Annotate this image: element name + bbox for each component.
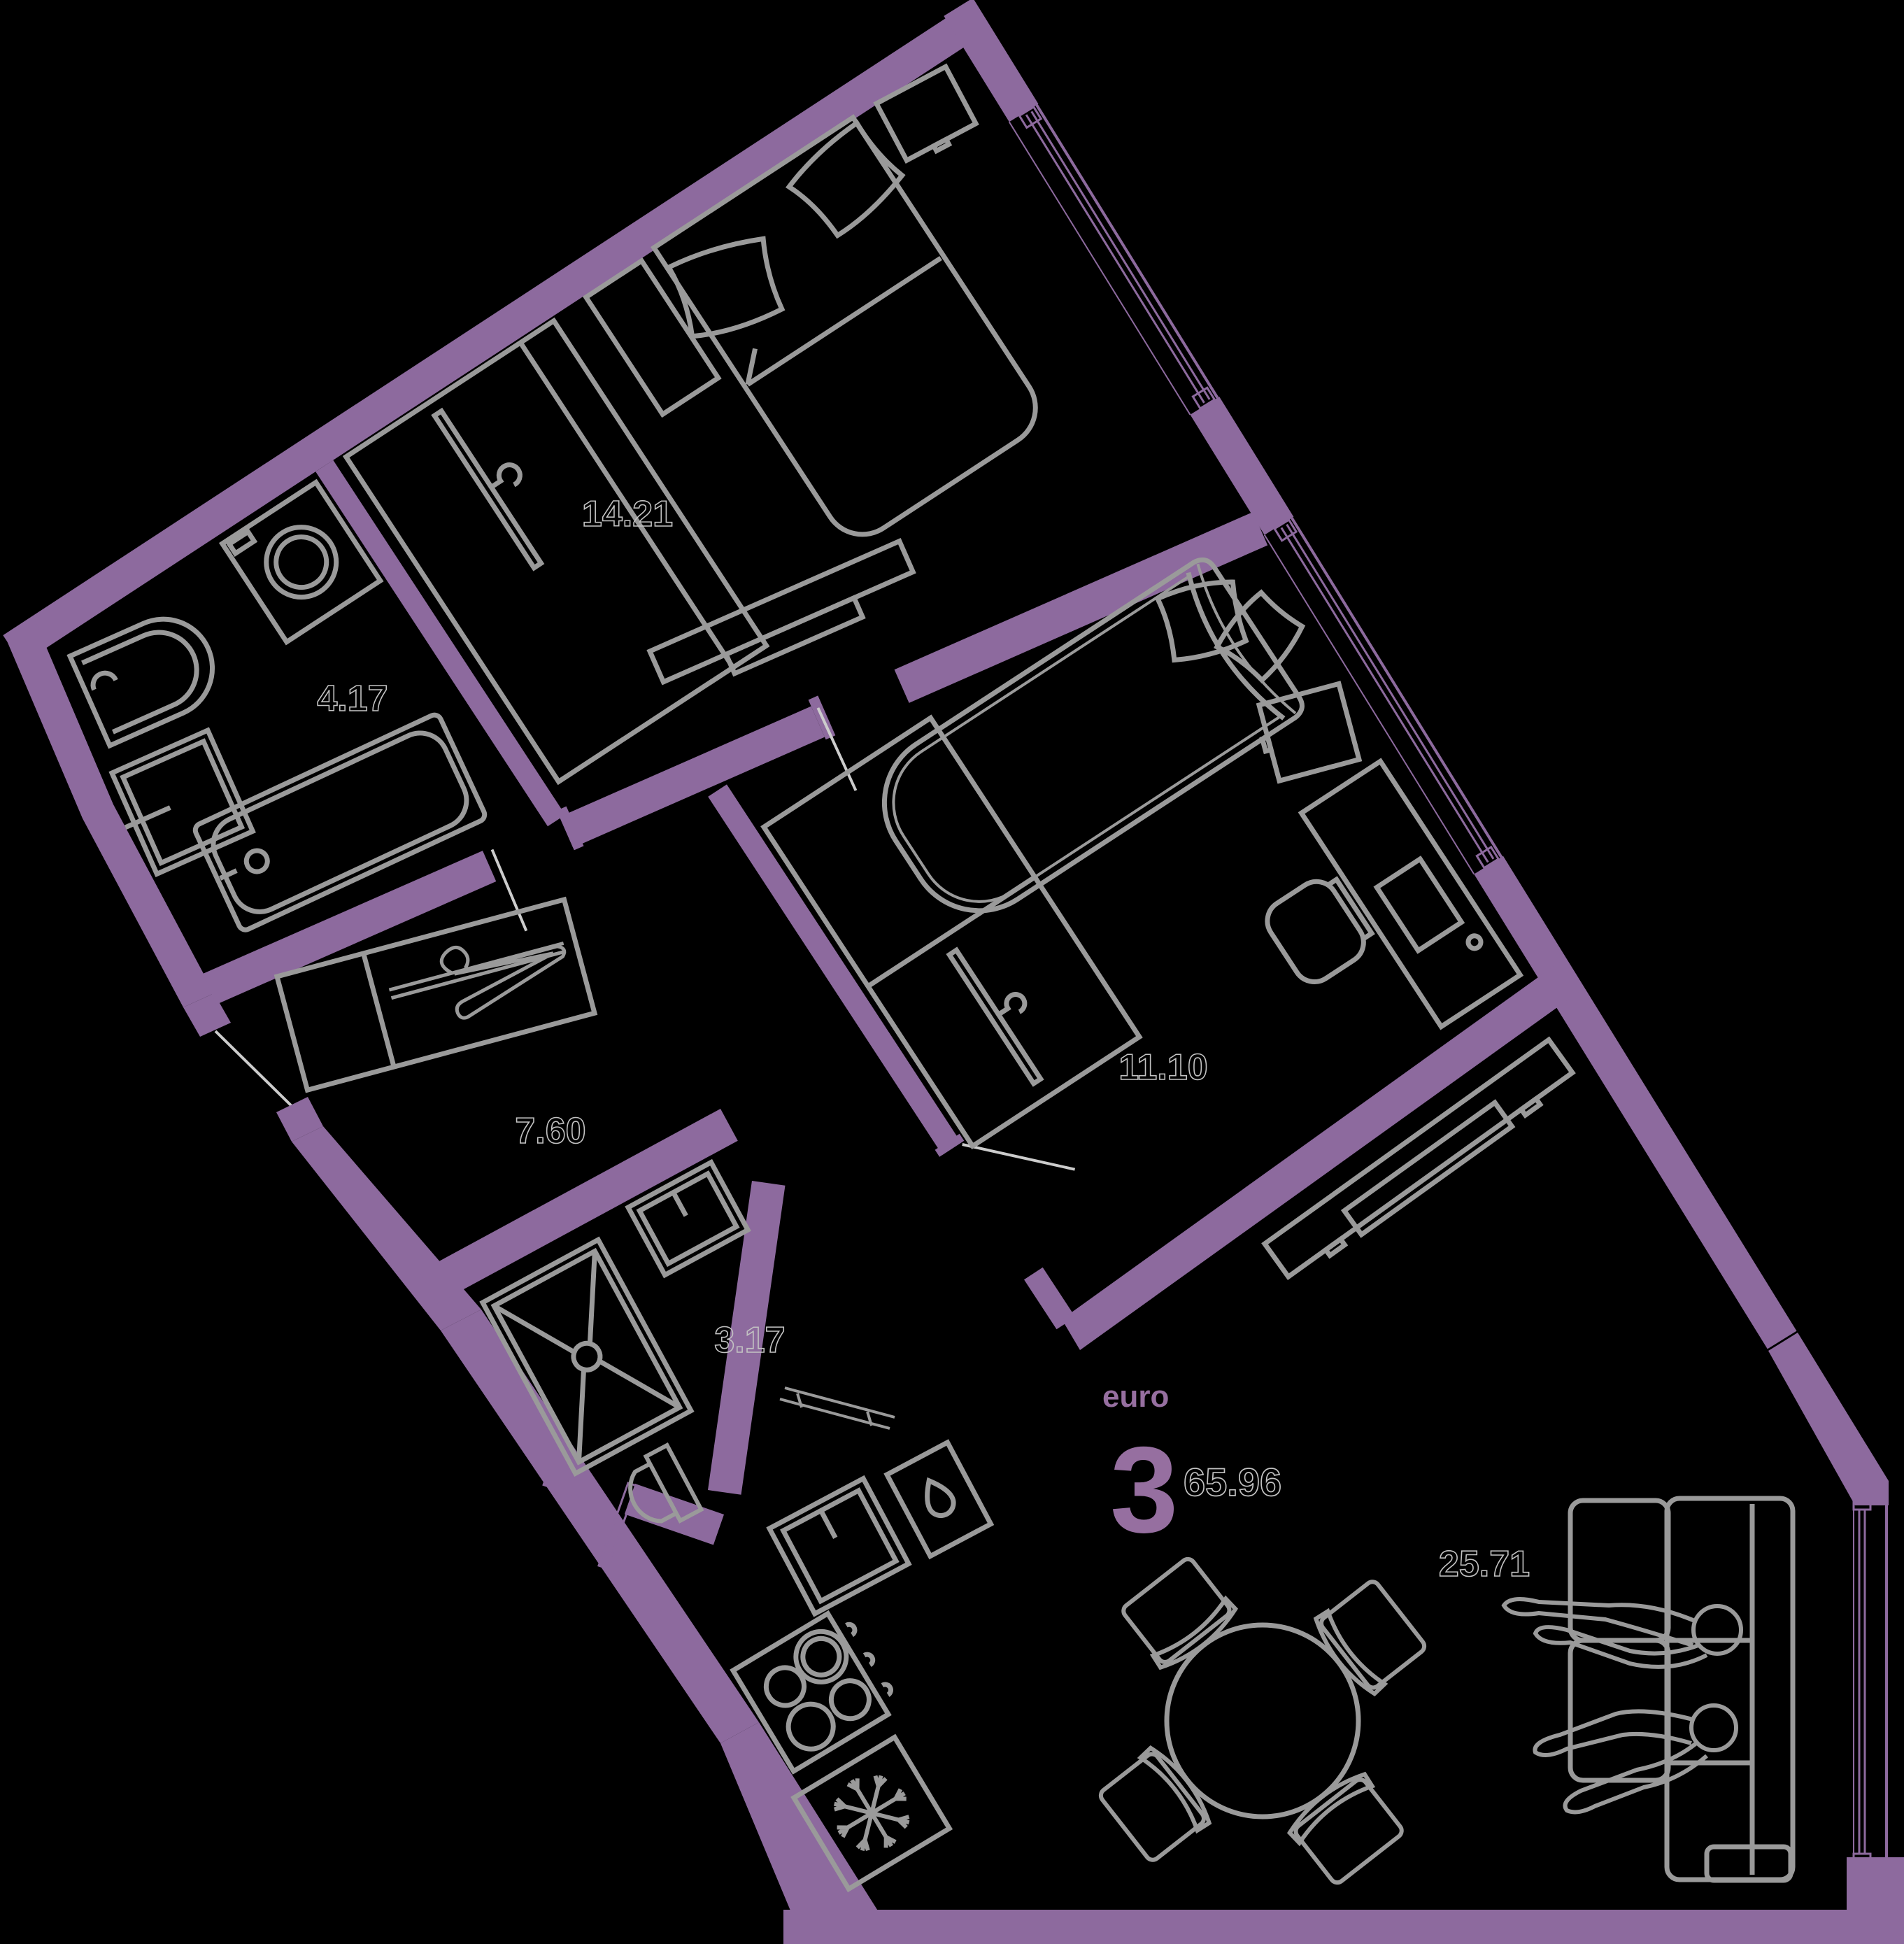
svg-text:4.17: 4.17: [317, 679, 388, 719]
svg-text:euro: euro: [1102, 1379, 1169, 1414]
svg-text:14.21: 14.21: [582, 494, 673, 534]
svg-text:65.96: 65.96: [1184, 1460, 1281, 1504]
svg-text:11.10: 11.10: [1118, 1047, 1207, 1088]
svg-text:7.60: 7.60: [515, 1111, 585, 1151]
svg-text:3.17: 3.17: [714, 1320, 785, 1361]
svg-text:25.71: 25.71: [1439, 1544, 1530, 1584]
svg-text:3: 3: [1110, 1422, 1178, 1559]
